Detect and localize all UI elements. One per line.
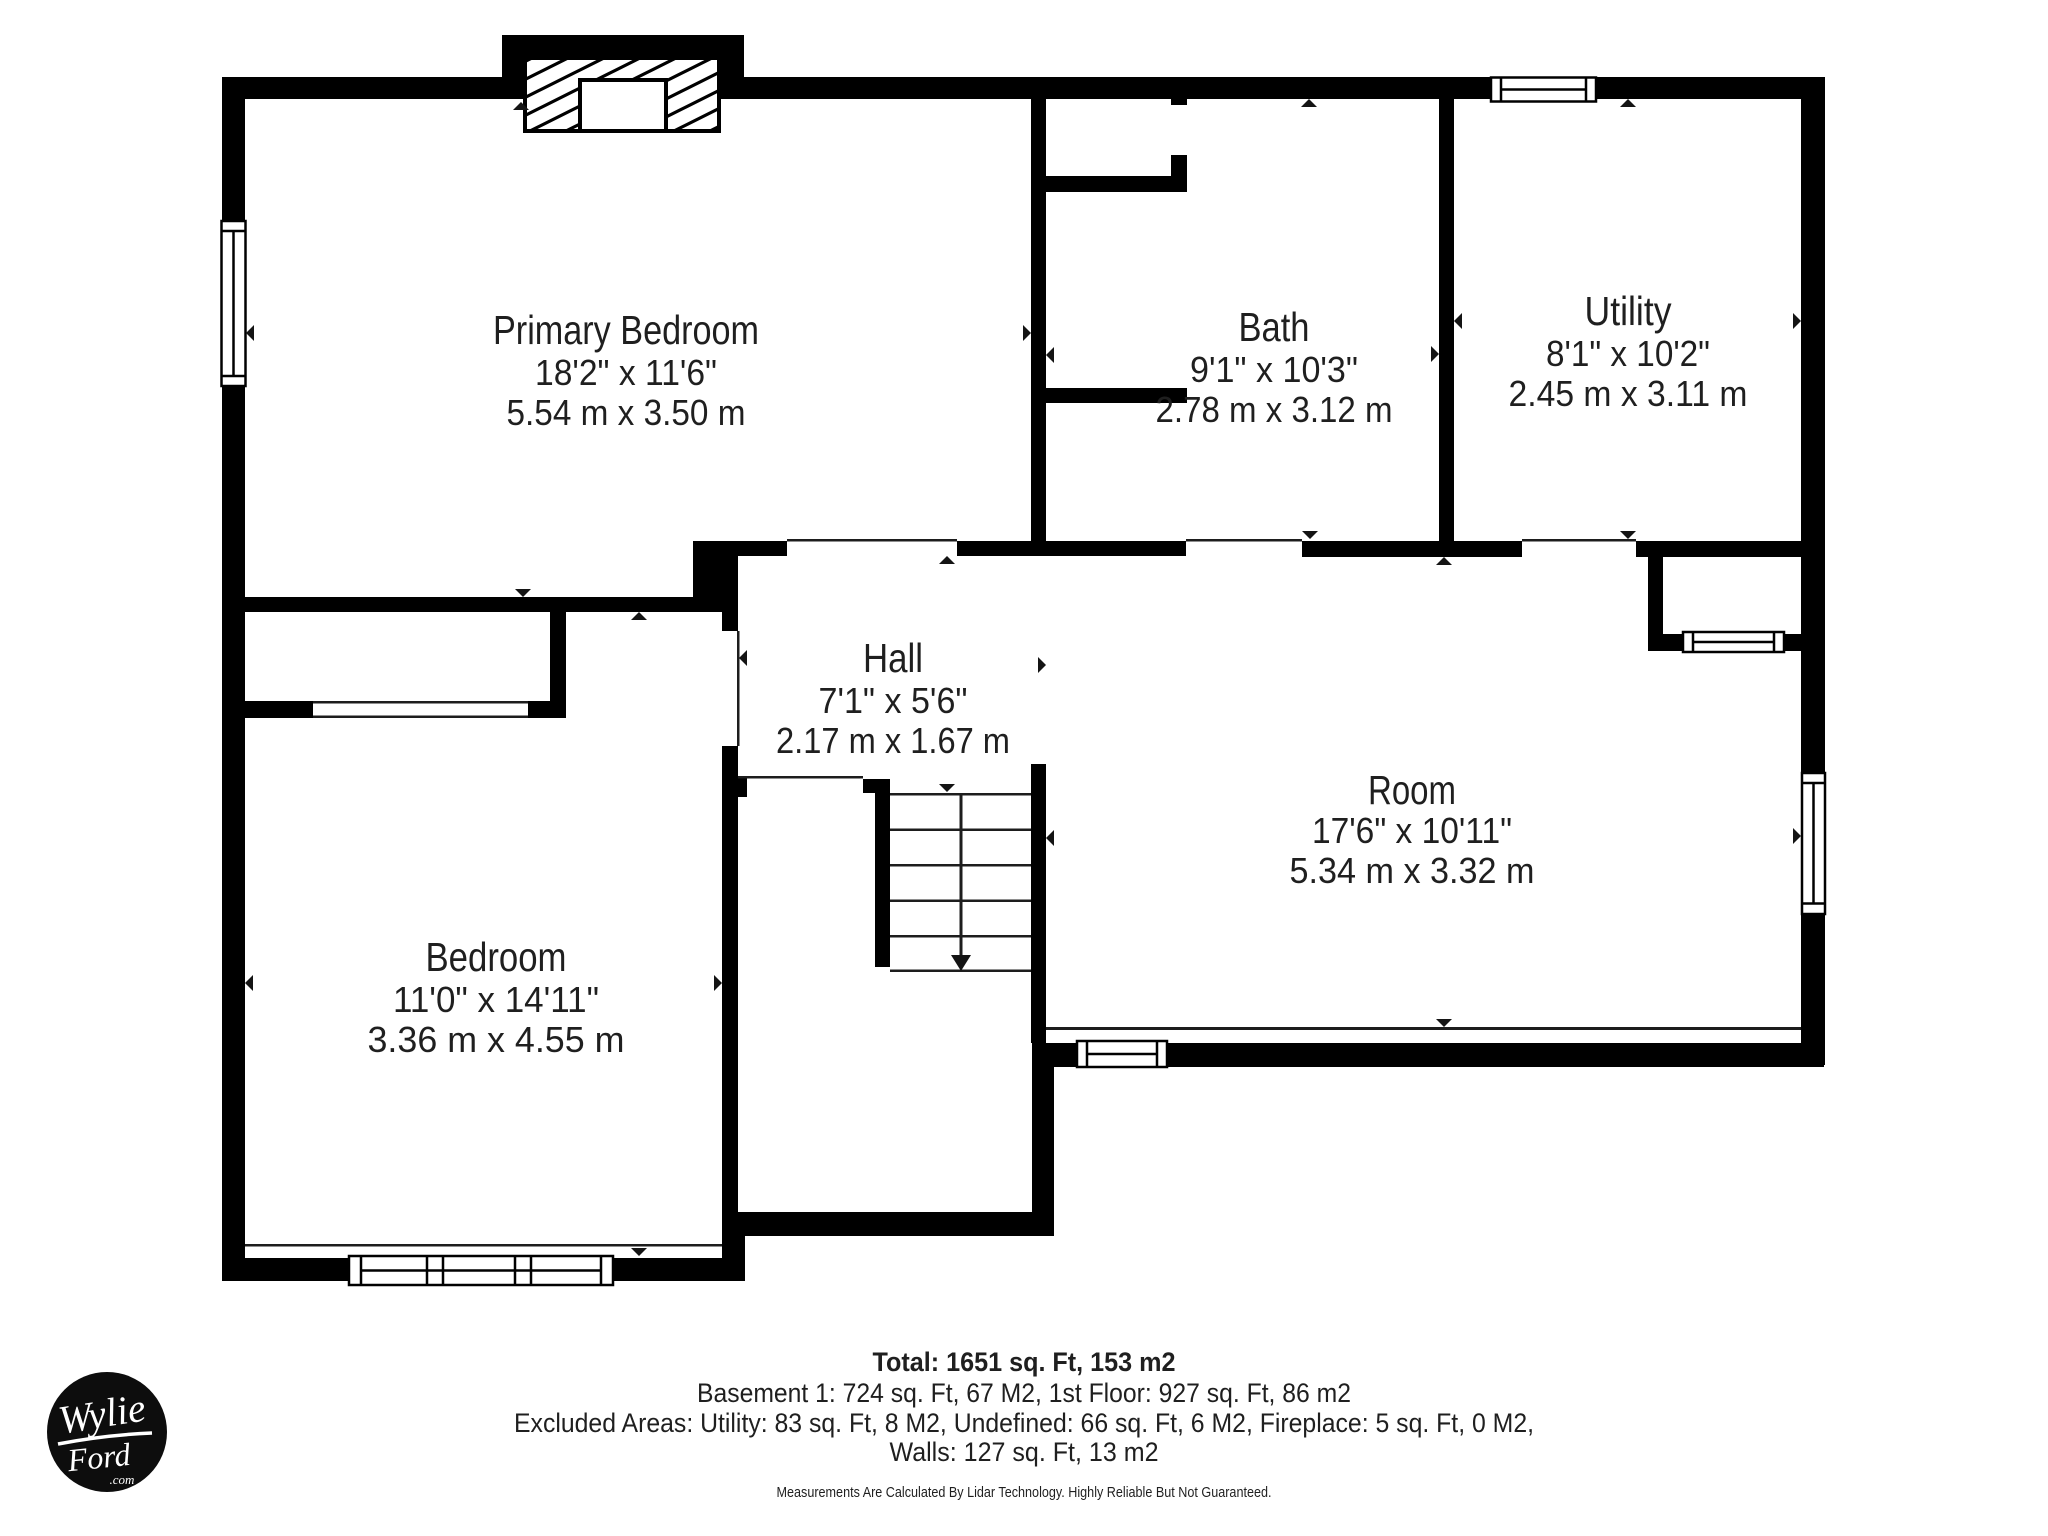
svg-text:2.45 m x 3.11 m: 2.45 m x 3.11 m xyxy=(1509,373,1748,414)
svg-text:5.34 m x 3.32 m: 5.34 m x 3.32 m xyxy=(1290,850,1535,891)
svg-text:Walls: 127 sq. Ft, 13 m2: Walls: 127 sq. Ft, 13 m2 xyxy=(890,1437,1159,1467)
svg-text:11'0" x 14'11": 11'0" x 14'11" xyxy=(393,979,599,1020)
svg-text:18'2" x 11'6": 18'2" x 11'6" xyxy=(535,352,717,393)
svg-text:Total: 1651 sq. Ft, 153 m2: Total: 1651 sq. Ft, 153 m2 xyxy=(873,1347,1176,1377)
svg-text:2.78 m x 3.12 m: 2.78 m x 3.12 m xyxy=(1156,389,1393,430)
svg-text:8'1" x 10'2": 8'1" x 10'2" xyxy=(1546,333,1710,374)
svg-text:9'1" x 10'3": 9'1" x 10'3" xyxy=(1190,349,1358,390)
svg-text:Hall: Hall xyxy=(863,635,923,681)
svg-text:5.54 m x 3.50 m: 5.54 m x 3.50 m xyxy=(507,392,746,433)
svg-text:Bath: Bath xyxy=(1239,304,1310,350)
svg-text:Excluded Areas: Utility: 83 sq: Excluded Areas: Utility: 83 sq. Ft, 8 M2… xyxy=(514,1408,1534,1438)
svg-text:3.36 m x 4.55 m: 3.36 m x 4.55 m xyxy=(368,1019,625,1060)
svg-text:17'6" x 10'11": 17'6" x 10'11" xyxy=(1312,810,1512,851)
svg-text:.com: .com xyxy=(110,1472,135,1487)
svg-text:2.17 m x 1.67 m: 2.17 m x 1.67 m xyxy=(776,720,1010,761)
svg-text:Utility: Utility xyxy=(1585,288,1672,334)
svg-text:Measurements Are Calculated By: Measurements Are Calculated By Lidar Tec… xyxy=(777,1484,1272,1501)
svg-text:Room: Room xyxy=(1368,767,1456,813)
svg-text:Basement 1: 724 sq. Ft, 67 M2,: Basement 1: 724 sq. Ft, 67 M2, 1st Floor… xyxy=(697,1378,1351,1408)
svg-text:7'1" x 5'6": 7'1" x 5'6" xyxy=(819,680,968,721)
svg-text:Primary Bedroom: Primary Bedroom xyxy=(493,307,759,353)
svg-text:Bedroom: Bedroom xyxy=(426,934,567,980)
